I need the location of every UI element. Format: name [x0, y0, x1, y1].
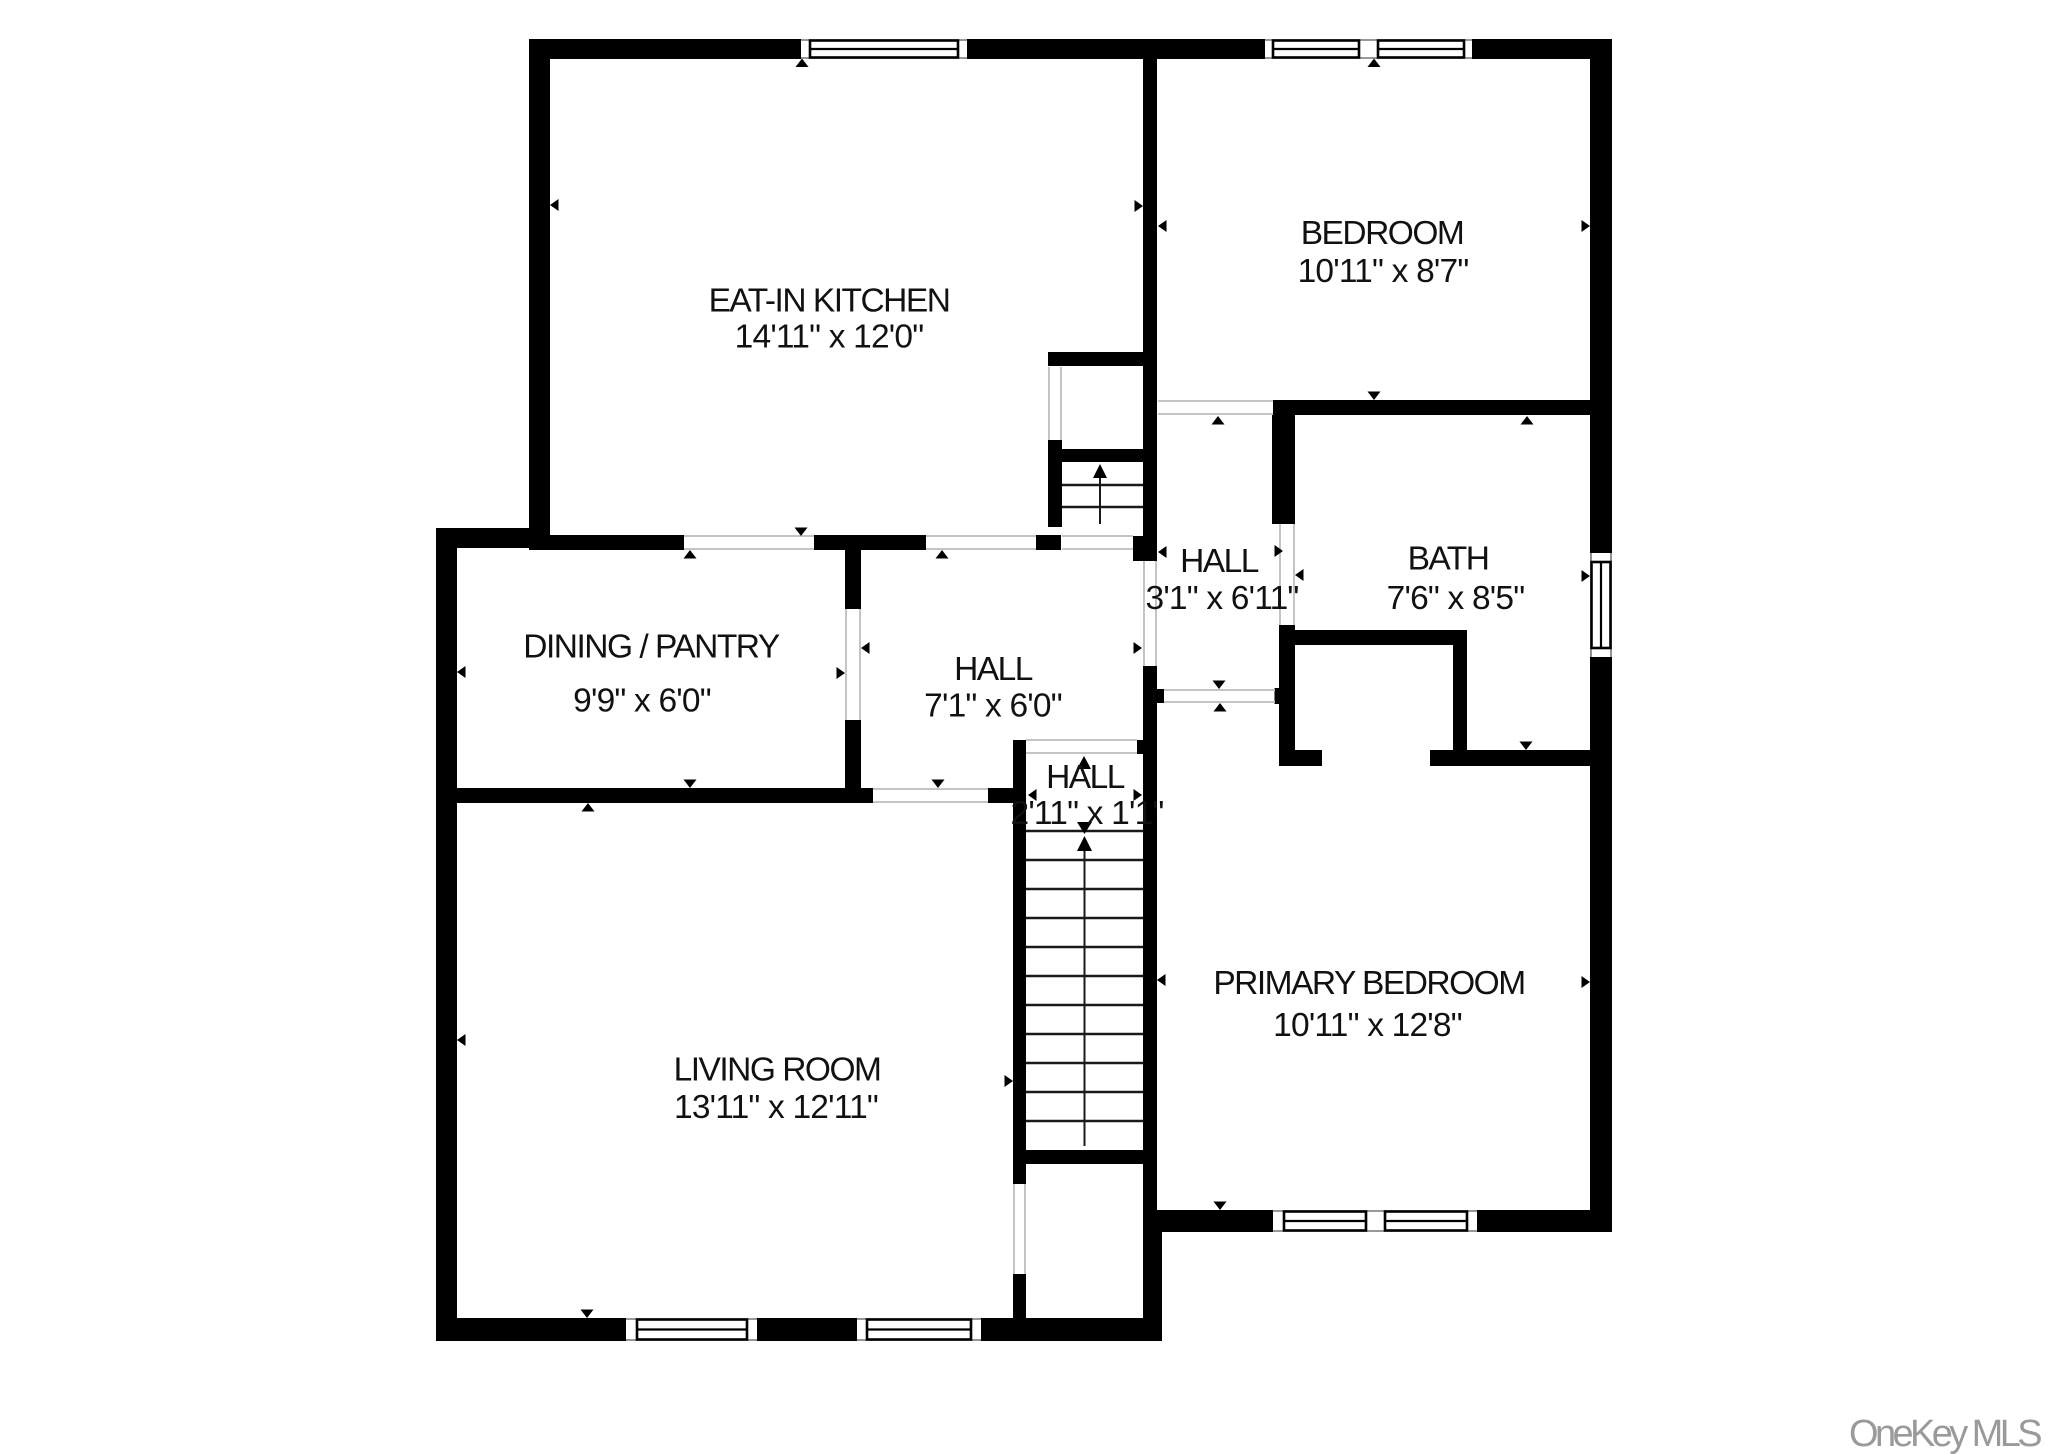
svg-text:HALL: HALL [954, 651, 1033, 688]
svg-text:10'11" x 12'8": 10'11" x 12'8" [1273, 1007, 1462, 1044]
svg-text:BEDROOM: BEDROOM [1301, 215, 1464, 252]
svg-text:9'9" x 6'0": 9'9" x 6'0" [573, 683, 711, 720]
svg-text:EAT-IN KITCHEN: EAT-IN KITCHEN [709, 283, 950, 320]
svg-text:14'11" x 12'0": 14'11" x 12'0" [735, 319, 924, 356]
svg-text:13'11" x 12'11": 13'11" x 12'11" [674, 1089, 878, 1126]
svg-text:DINING / PANTRY: DINING / PANTRY [523, 629, 780, 666]
svg-text:HALL: HALL [1046, 759, 1125, 796]
svg-text:OneKey MLS: OneKey MLS [1849, 1413, 2041, 1454]
svg-text:PRIMARY BEDROOM: PRIMARY BEDROOM [1213, 965, 1524, 1002]
svg-text:HALL: HALL [1180, 543, 1259, 580]
svg-text:3'1" x 6'11": 3'1" x 6'11" [1145, 580, 1298, 617]
svg-text:7'6" x 8'5": 7'6" x 8'5" [1387, 580, 1525, 617]
svg-text:2'11" x 1'1": 2'11" x 1'1" [1010, 795, 1163, 832]
svg-text:7'1" x 6'0": 7'1" x 6'0" [924, 688, 1062, 725]
svg-text:LIVING ROOM: LIVING ROOM [674, 1052, 881, 1089]
svg-text:10'11" x 8'7": 10'11" x 8'7" [1298, 253, 1469, 290]
svg-text:BATH: BATH [1408, 541, 1489, 578]
